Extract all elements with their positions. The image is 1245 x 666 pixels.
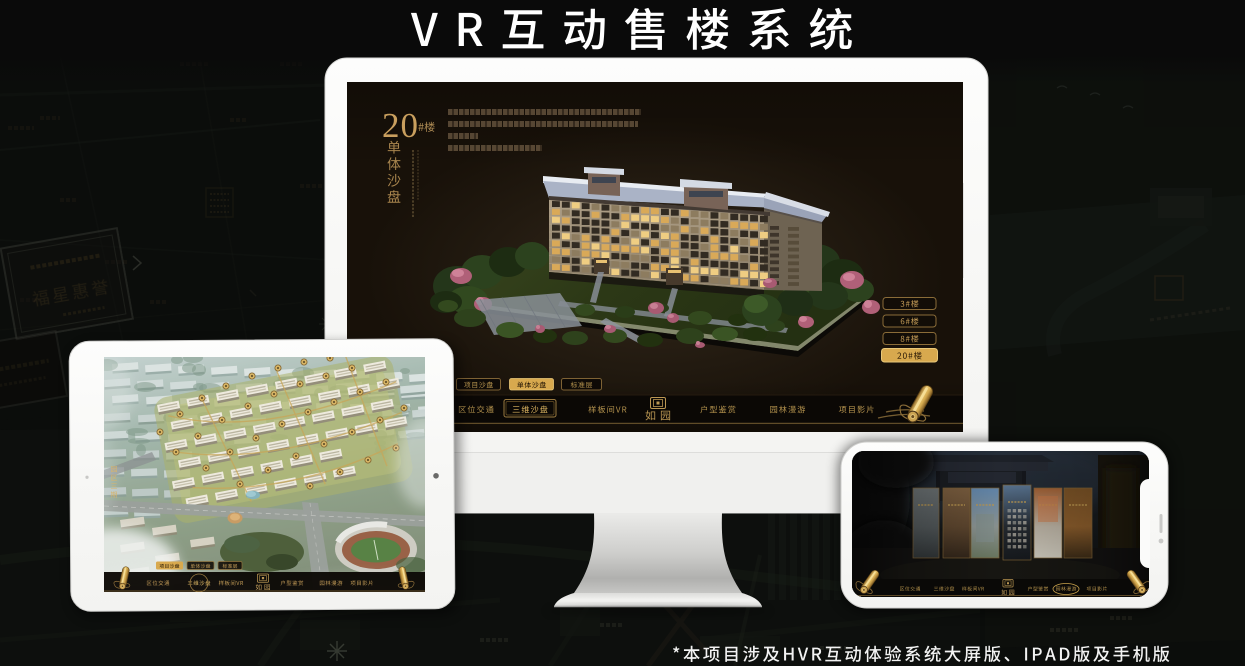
svg-text:20: 20 xyxy=(382,106,419,145)
